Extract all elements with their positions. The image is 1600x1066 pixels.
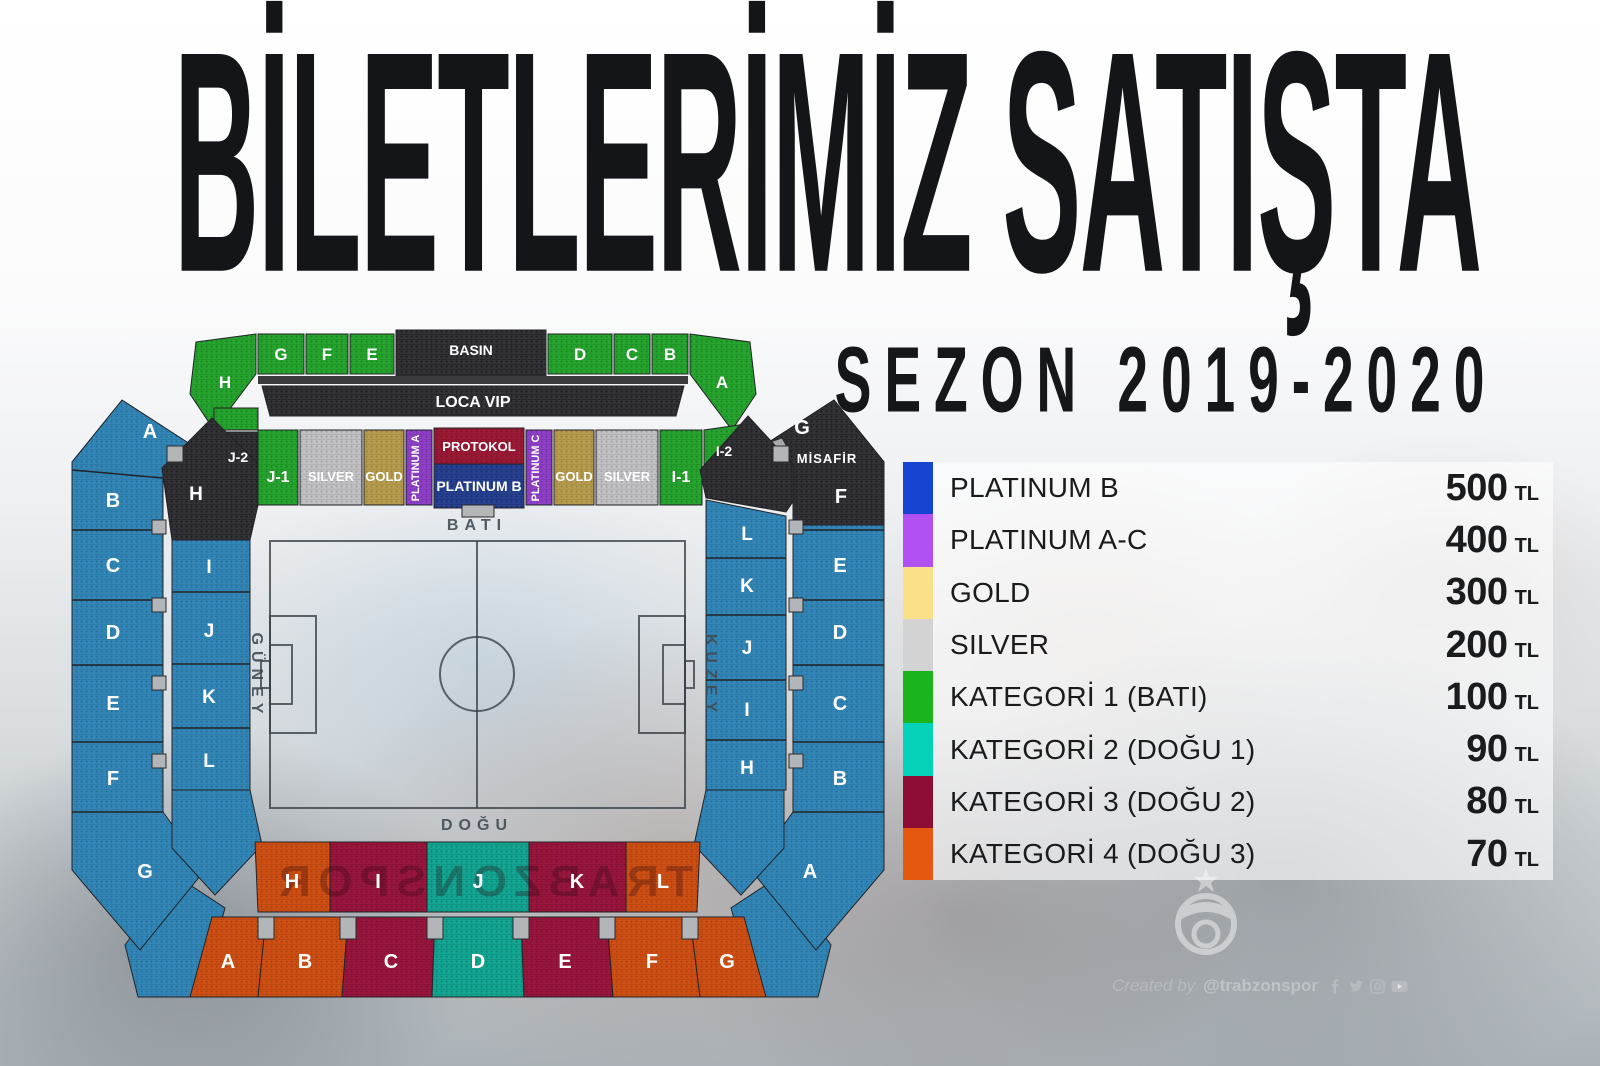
legend-price: 500 (1446, 467, 1508, 510)
label-gold-r: GOLD (555, 469, 593, 484)
legend-price: 70 (1466, 833, 1507, 876)
label-east-outer-b: B (298, 951, 312, 973)
legend-price: 300 (1446, 571, 1508, 614)
pitch (261, 541, 694, 808)
legend-currency: TL (1515, 640, 1539, 663)
label-platinum-b: PLATINUM B (436, 478, 521, 494)
label-south-outer-b: B (106, 490, 120, 512)
color-swatch (903, 671, 933, 723)
label-j1: J-1 (266, 469, 289, 486)
legend-row: PLATINUM B500TL (903, 462, 1553, 514)
label-north-outer-b: B (833, 768, 847, 790)
label-south-outer-d: D (106, 622, 120, 644)
credit-handle: @trabzonspor (1203, 976, 1318, 996)
label-platinum-a: PLATINUM A (410, 435, 422, 502)
color-swatch (903, 514, 933, 566)
section-west-lower-silver-l (300, 430, 362, 505)
legend-row: KATEGORİ 2 (DOĞU 1)90TL (903, 723, 1553, 775)
legend-label: KATEGORİ 3 (DOĞU 2) (950, 786, 1466, 818)
poster-subtitle-wrap: SEZON 2019-2020 (777, 334, 1497, 394)
legend-price: 200 (1446, 624, 1508, 667)
label-north-outer-e: E (833, 555, 846, 577)
label-north-outer-f: F (835, 486, 847, 508)
west-rail-rows (258, 376, 688, 384)
label-west-upper-d: D (574, 345, 586, 364)
legend-currency: TL (1515, 587, 1539, 610)
legend-row: SILVER200TL (903, 619, 1553, 671)
legend-currency: TL (1515, 744, 1539, 767)
label-west-upper-c: C (626, 345, 638, 364)
label-east-inner-h: H (285, 871, 299, 893)
label-south-outer-a: A (143, 421, 157, 443)
legend-price: 400 (1446, 519, 1508, 562)
label-east-inner-j: J (472, 871, 483, 893)
legend-label: SILVER (950, 629, 1446, 661)
label-east-outer-f: F (646, 951, 658, 973)
poster-subtitle: SEZON 2019-2020 (834, 334, 1497, 427)
label-loca-vip: LOCA VIP (436, 394, 511, 411)
credit-line: Created by @trabzonspor (1112, 976, 1408, 996)
label-press-box: BASIN (449, 342, 493, 358)
poster-title: BİLETLERİMİZ SATIŞTA (174, 4, 1481, 319)
section-west-lower-silver-r (596, 430, 658, 505)
twitter-icon (1348, 979, 1364, 994)
label-misafir: MİSAFİR (797, 451, 857, 466)
label-east-inner-k: K (570, 871, 585, 893)
facebook-icon (1327, 979, 1342, 994)
legend-row: GOLD300TL (903, 567, 1553, 619)
section-west-lower-j1 (258, 430, 298, 505)
label-east-inner-i: I (375, 871, 381, 893)
color-swatch (903, 828, 933, 880)
label-north-outer-c: C (833, 693, 847, 715)
color-swatch (903, 776, 933, 828)
label-south-outer-g: G (137, 861, 153, 883)
section-west-lower-gold-r (554, 430, 594, 505)
social-icons (1327, 979, 1408, 994)
legend-label: PLATINUM B (950, 472, 1446, 504)
legend-label: PLATINUM A-C (950, 524, 1446, 556)
credit-text: Created by (1112, 976, 1195, 996)
poster-title-wrap: BİLETLERİMİZ SATIŞTA (0, 4, 1600, 154)
price-legend: PLATINUM B500TL PLATINUM A-C400TL GOLD30… (903, 462, 1553, 880)
label-south-outer-e: E (106, 693, 119, 715)
label-east-outer-c: C (384, 951, 398, 973)
label-east-outer-a: A (221, 951, 235, 973)
label-direction-south: GÜNEY (248, 633, 267, 720)
label-north-inner-k: K (740, 576, 754, 597)
label-south-outer-c: C (106, 555, 120, 577)
label-j2: J-2 (228, 449, 248, 465)
label-north-inner-j: J (742, 638, 753, 659)
label-west-upper-g: G (274, 345, 287, 364)
color-swatch (903, 723, 933, 775)
legend-price: 80 (1466, 780, 1507, 823)
legend-currency: TL (1515, 535, 1539, 558)
color-swatch (903, 619, 933, 671)
legend-label: KATEGORİ 2 (DOĞU 1) (950, 734, 1466, 766)
color-swatch (903, 462, 933, 514)
label-i1: I-1 (672, 469, 691, 486)
legend-price: 90 (1466, 728, 1507, 771)
legend-currency: TL (1515, 692, 1539, 715)
label-west-upper-a: A (716, 373, 728, 392)
label-north-outer-a: A (803, 861, 817, 883)
label-south-inner-i: I (206, 557, 211, 578)
label-south-inner-l: L (203, 751, 215, 772)
club-crest-watermark (1158, 862, 1254, 972)
label-north-inner-l: L (741, 524, 753, 545)
label-direction-west: BATI (447, 517, 507, 534)
label-west-upper-f: F (322, 345, 332, 364)
section-west-lower-gold-l (364, 430, 404, 505)
label-north-outer-d: D (833, 622, 847, 644)
section-west-lower-i1 (660, 430, 702, 505)
legend-currency: TL (1515, 796, 1539, 819)
label-silver-r: SILVER (604, 469, 651, 484)
label-direction-north: KUZEY (702, 634, 719, 718)
west-gate (462, 505, 494, 517)
legend-row: KATEGORİ 1 (BATI)100TL (903, 671, 1553, 723)
label-east-inner-l: L (657, 871, 669, 893)
legend-row: KATEGORİ 3 (DOĞU 2)80TL (903, 776, 1553, 828)
label-platinum-c: PLATINUM C (530, 434, 542, 501)
legend-currency: TL (1515, 849, 1539, 872)
legend-currency: TL (1515, 483, 1539, 506)
youtube-icon (1391, 979, 1408, 994)
label-gold-l: GOLD (365, 469, 403, 484)
label-silver-l: SILVER (308, 469, 355, 484)
label-east-outer-g: G (719, 951, 735, 973)
instagram-icon (1370, 979, 1385, 994)
legend-row: PLATINUM A-C400TL (903, 514, 1553, 566)
label-south-inner-k: K (202, 687, 216, 708)
label-east-outer-e: E (558, 951, 571, 973)
label-west-upper-h: H (219, 373, 231, 392)
label-west-upper-e: E (366, 345, 377, 364)
label-north-outer-g: G (794, 417, 810, 439)
legend-price: 100 (1446, 676, 1508, 719)
poster: TRABZONSPOR H G F E BASIN D C B A LOCA V… (0, 0, 1600, 1066)
label-west-upper-b: B (664, 345, 676, 364)
label-north-inner-h: H (740, 758, 754, 779)
label-north-inner-i: I (744, 700, 749, 721)
legend-label: GOLD (950, 577, 1446, 609)
label-south-outer-f: F (107, 768, 119, 790)
label-south-inner-h: H (189, 484, 203, 505)
label-protokol: PROTOKOL (442, 439, 515, 454)
label-south-inner-j: J (204, 621, 215, 642)
label-i2: I-2 (716, 443, 733, 459)
legend-label: KATEGORİ 1 (BATI) (950, 681, 1446, 713)
label-direction-east: DOĞU (441, 815, 513, 834)
color-swatch (903, 567, 933, 619)
label-east-outer-d: D (471, 951, 485, 973)
